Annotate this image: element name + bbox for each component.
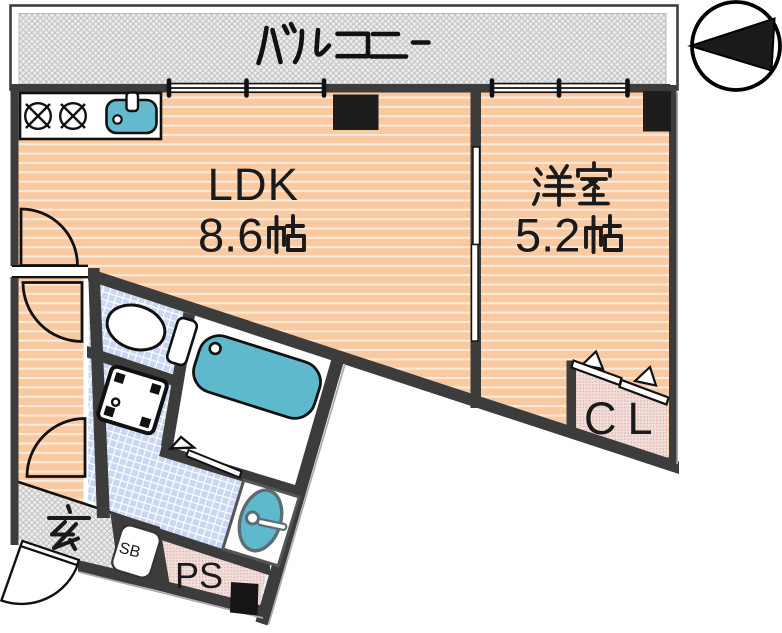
svg-text:5.2: 5.2: [515, 209, 580, 262]
svg-text:CL: CL: [584, 393, 664, 444]
svg-text:PS: PS: [175, 555, 223, 596]
svg-text:8.6: 8.6: [198, 209, 263, 262]
svg-text:LDK: LDK: [208, 159, 300, 210]
